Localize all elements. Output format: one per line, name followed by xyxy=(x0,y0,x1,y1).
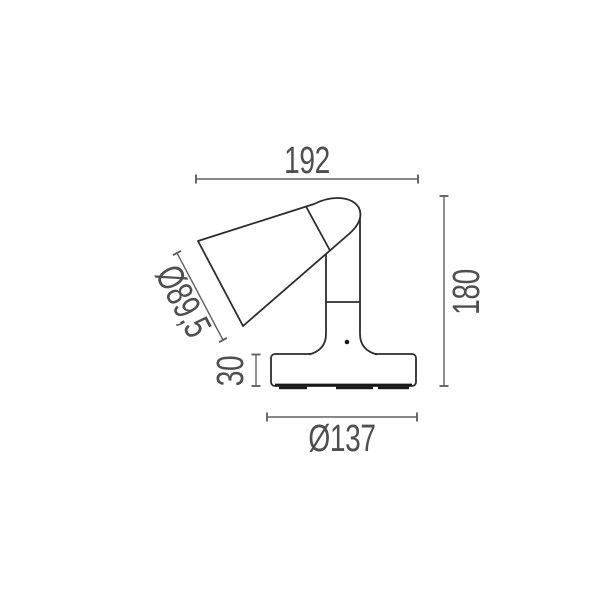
lamp-base xyxy=(271,354,416,386)
dimension-overall-height: 180 xyxy=(440,196,489,386)
dimension-base-diameter: Ø137 xyxy=(267,413,417,461)
base-foot xyxy=(378,387,409,390)
lamp-stem xyxy=(309,302,377,356)
technical-drawing-canvas: 192 180 Ø89,5 xyxy=(0,0,600,600)
dim-label-shade-diameter: Ø89,5 xyxy=(146,259,218,345)
lamp-stem-body xyxy=(309,302,377,356)
base-foot xyxy=(279,387,307,390)
dim-label-base-diameter: Ø137 xyxy=(308,418,375,460)
dimension-overall-width: 192 xyxy=(196,140,418,183)
base-foot xyxy=(336,387,373,390)
dim-label-overall-height: 180 xyxy=(446,269,488,315)
dimension-base-height: 30 xyxy=(210,355,260,387)
stem-screw-dot xyxy=(345,340,350,345)
dimension-annotations: 192 180 Ø89,5 xyxy=(146,140,488,460)
spotlight-dimension-drawing: 192 180 Ø89,5 xyxy=(0,0,600,600)
dim-label-base-height: 30 xyxy=(210,356,252,387)
base-feet xyxy=(279,387,409,390)
dim-label-overall-width: 192 xyxy=(284,140,330,182)
